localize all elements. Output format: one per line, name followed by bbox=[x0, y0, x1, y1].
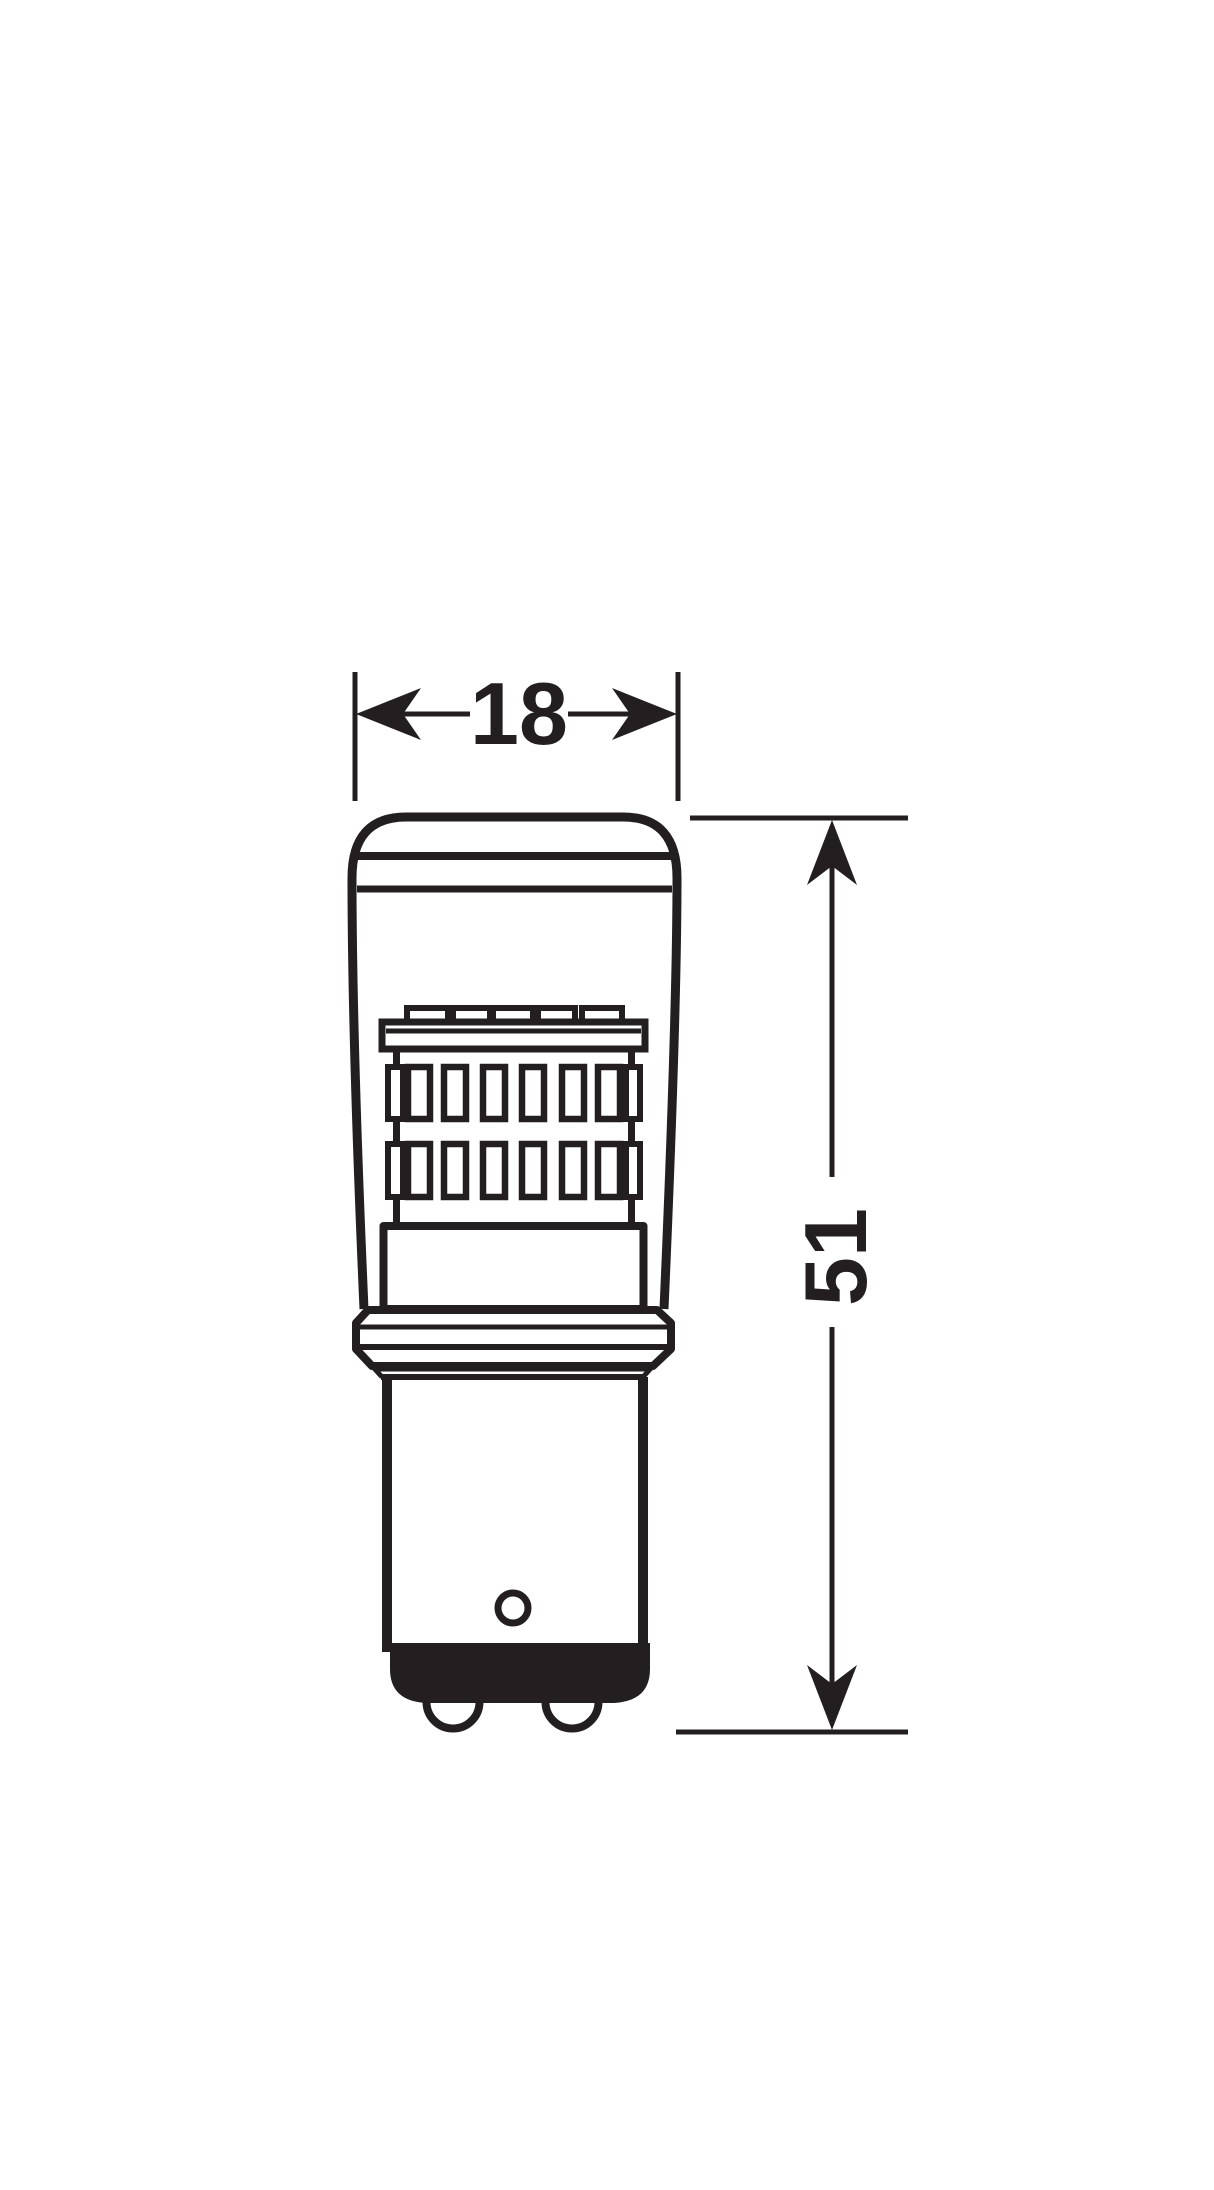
width-dimension-label: 18 bbox=[470, 664, 568, 763]
led-chip bbox=[444, 1144, 466, 1197]
led-chip bbox=[598, 1067, 620, 1119]
led-cage-edge-chip bbox=[388, 1067, 403, 1119]
led-chip bbox=[562, 1067, 584, 1119]
led-chip bbox=[408, 1144, 430, 1197]
insulator bbox=[390, 1643, 650, 1703]
led-chip bbox=[483, 1144, 505, 1197]
led-chip bbox=[444, 1067, 466, 1119]
bayonet-base bbox=[387, 1377, 650, 1729]
led-chip bbox=[598, 1144, 620, 1197]
mounting-collar bbox=[356, 1310, 671, 1377]
height-dimension: 51 bbox=[676, 818, 908, 1732]
drawing-canvas: 18 51 bbox=[0, 0, 1214, 2190]
led-cage-edge-chip bbox=[626, 1067, 640, 1119]
bulb-diagram-svg: 18 51 bbox=[0, 0, 1214, 2190]
led-chip bbox=[408, 1067, 430, 1119]
lower-body bbox=[384, 1226, 644, 1309]
led-chip bbox=[483, 1067, 505, 1119]
width-dimension: 18 bbox=[355, 664, 678, 801]
led-chip bbox=[522, 1144, 544, 1197]
locating-pin bbox=[498, 1593, 528, 1623]
led-chip bbox=[522, 1067, 544, 1119]
collar-outline bbox=[356, 1310, 671, 1366]
led-chip bbox=[562, 1144, 584, 1197]
led-cage-edge-chip bbox=[626, 1144, 640, 1197]
bulb-drawing bbox=[352, 817, 677, 1729]
led-board-plate bbox=[382, 1022, 645, 1049]
height-dimension-label: 51 bbox=[786, 1208, 885, 1306]
led-cage-edge-chip bbox=[388, 1144, 403, 1197]
